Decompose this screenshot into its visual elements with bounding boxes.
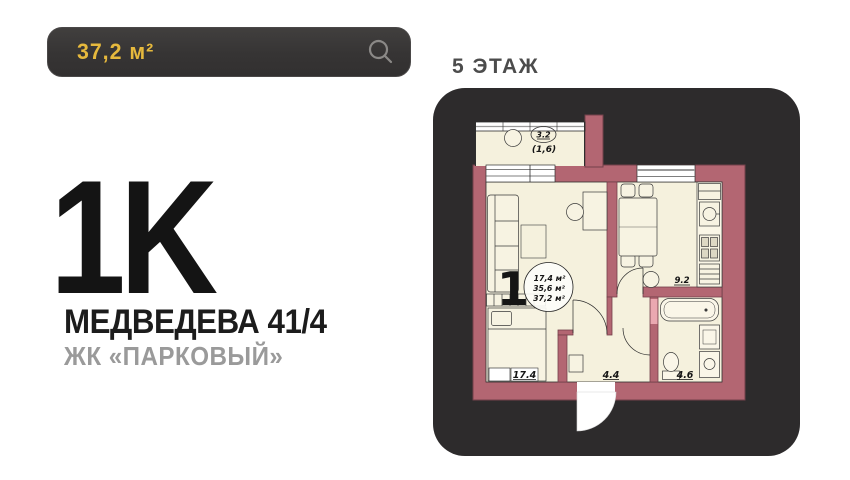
area-total: 37,2 м² bbox=[533, 294, 565, 303]
kitchen-cabinet bbox=[700, 264, 720, 284]
search-icon[interactable] bbox=[366, 38, 394, 66]
area-main: 35,6 м² bbox=[533, 284, 565, 293]
fridge bbox=[699, 184, 721, 200]
residential-complex-name: ЖК «ПАРКОВЫЙ» bbox=[64, 341, 283, 372]
balcony-reduced-area-label: (1,6) bbox=[532, 145, 556, 155]
floor-label: 5 ЭТАЖ bbox=[452, 55, 539, 79]
bathroom-door-leaf bbox=[651, 299, 658, 324]
bathroom-sink bbox=[700, 325, 720, 349]
floor-plan: 3.2 (1,6) bbox=[433, 88, 800, 456]
bathtub bbox=[661, 299, 719, 322]
washing-machine bbox=[700, 352, 720, 378]
bed-bench bbox=[489, 368, 510, 381]
living-room-window bbox=[486, 165, 555, 182]
entrance-door bbox=[577, 382, 616, 431]
hall-cabinet bbox=[569, 355, 583, 372]
area-living: 17,4 м² bbox=[534, 274, 566, 283]
small-round-table bbox=[643, 272, 659, 288]
unit-info: 1 17,4 м² 35,6 м² 37,2 м² bbox=[497, 262, 573, 316]
kitchen-area-label: 9.2 bbox=[674, 276, 689, 286]
floor-plan-card: 3.2 (1,6) bbox=[433, 88, 800, 456]
balcony-table bbox=[505, 130, 522, 147]
desk-chair bbox=[567, 204, 584, 221]
balcony: 3.2 (1,6) bbox=[475, 122, 585, 166]
listing-address: МЕДВЕДЕВА 41/4 bbox=[64, 303, 327, 342]
desk bbox=[583, 192, 607, 230]
rooms-count-title: 1K bbox=[50, 157, 212, 319]
search-bar[interactable]: 37,2 м² bbox=[47, 27, 411, 77]
search-value: 37,2 м² bbox=[77, 39, 154, 65]
balcony-area-label: 3.2 bbox=[536, 131, 551, 140]
kitchen-window bbox=[637, 165, 695, 182]
kitchen-sink bbox=[700, 202, 721, 226]
stove bbox=[700, 235, 720, 261]
